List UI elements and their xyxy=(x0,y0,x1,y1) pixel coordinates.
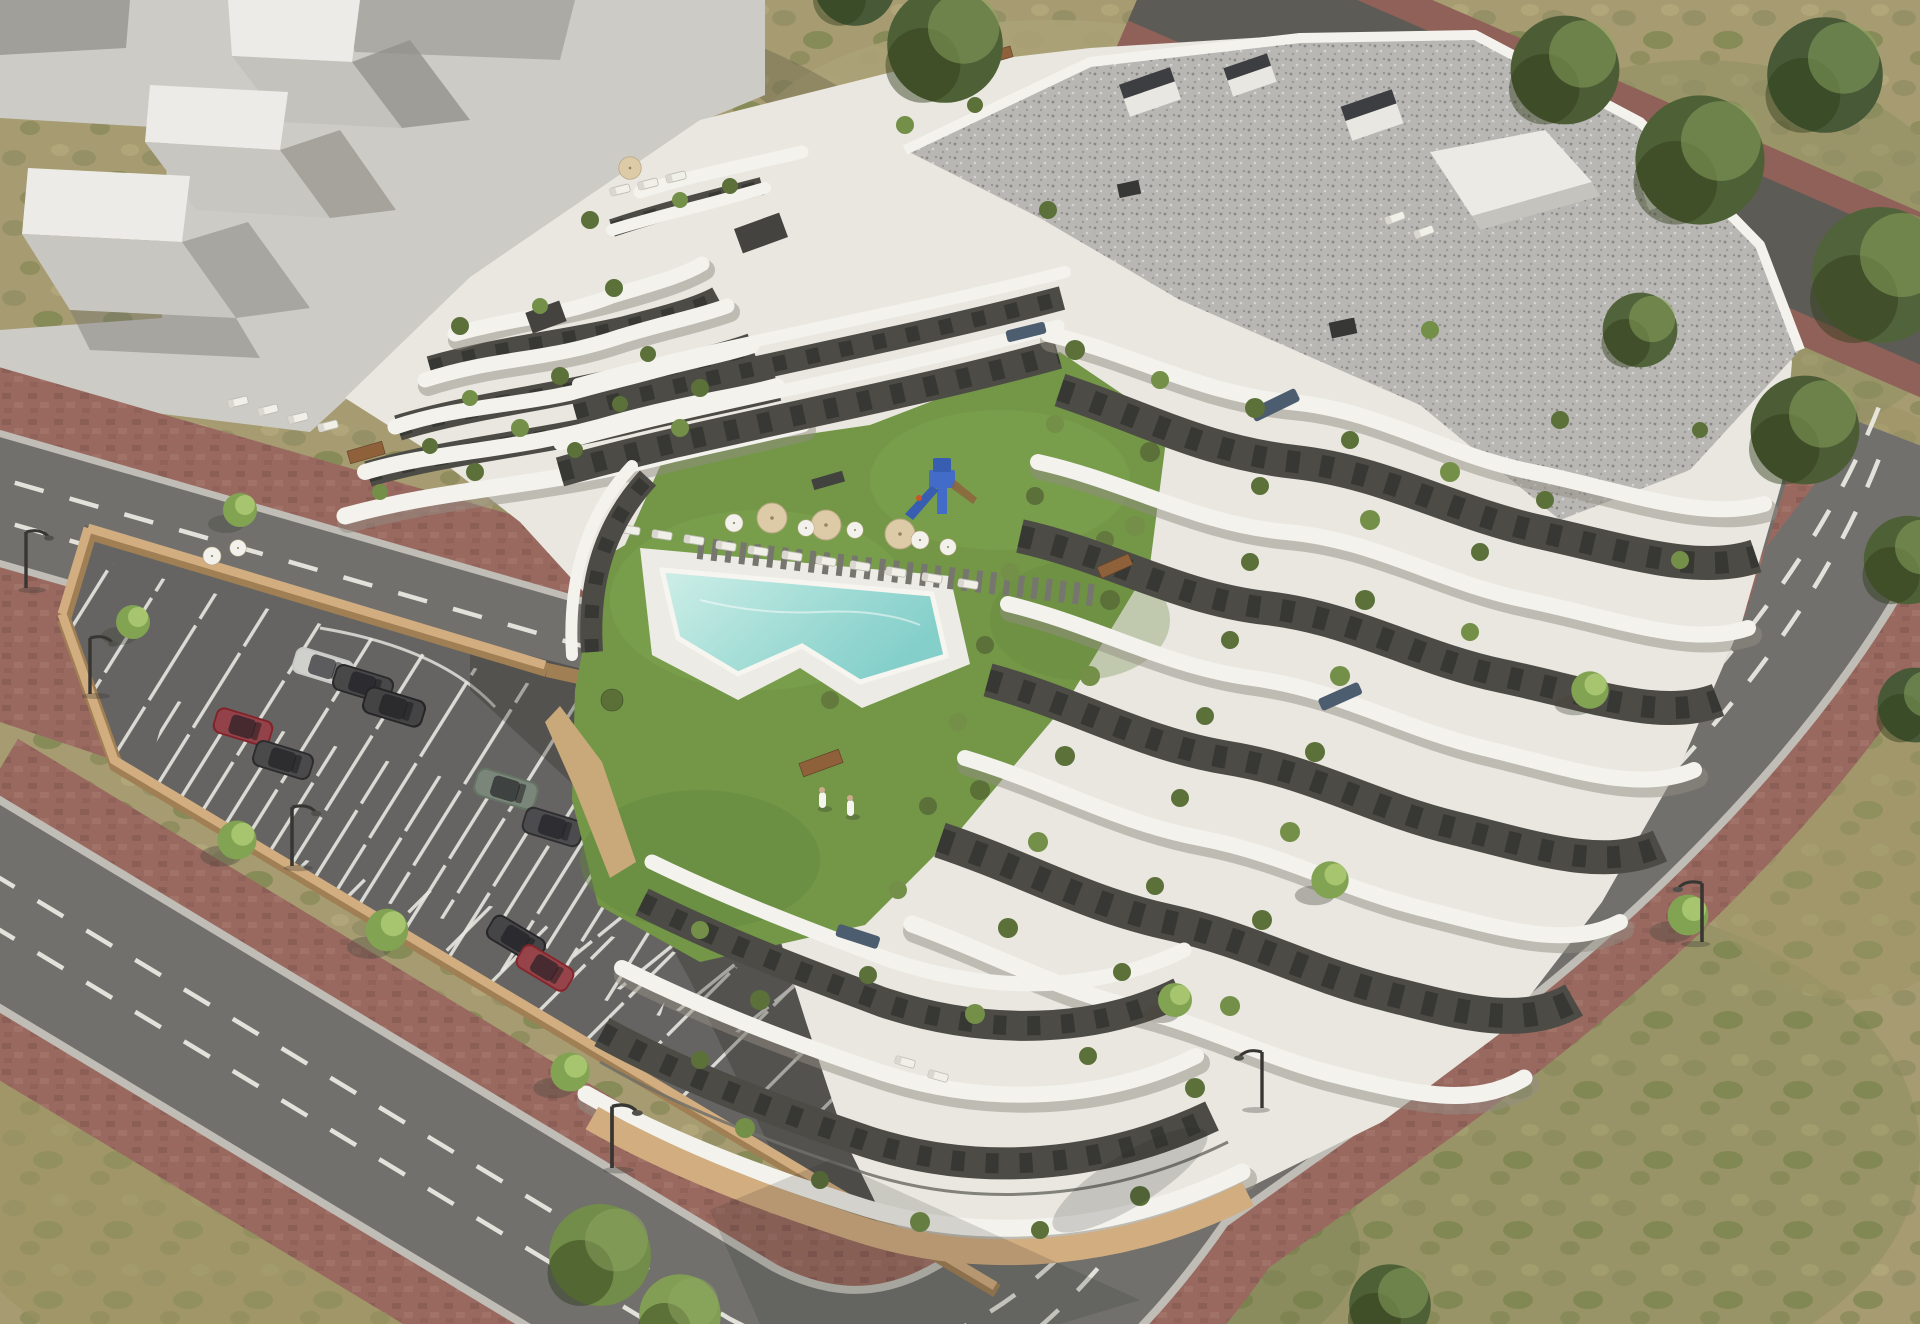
scene-canvas xyxy=(0,0,1920,1324)
aerial-render xyxy=(0,0,1920,1324)
light-overlay xyxy=(0,0,1920,1324)
